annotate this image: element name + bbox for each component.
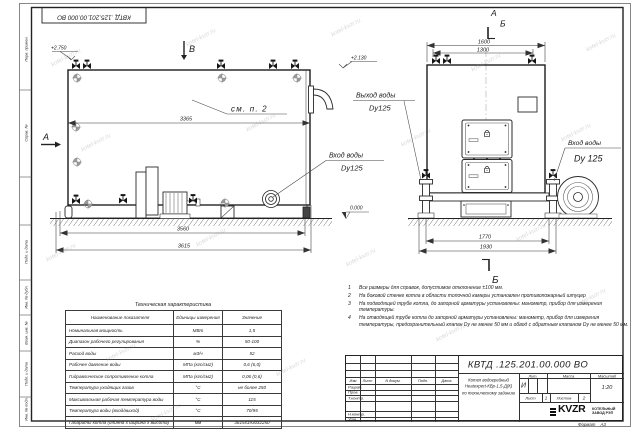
outlet-water-dn: Dy125 — [369, 104, 392, 113]
title-block: КВТД .125.201.00.000 ВО Изм Лист N докум… — [345, 355, 623, 421]
see-note-ref: см. п. 2 — [231, 105, 268, 114]
cell-name: Температура воды (вход/выход) — [66, 405, 174, 417]
sheets-label: Листов — [557, 395, 572, 400]
zero-elevation-mark: 0.000 — [342, 206, 369, 219]
note-text: На боковой стенке котла в области топочн… — [359, 293, 636, 299]
table-row: Рабочее давление водыМПа (кгс/см2)0,6 (6… — [66, 359, 282, 371]
valve-icon — [549, 169, 557, 178]
rev-col-data: Дата — [441, 379, 451, 383]
table-header-row: Наименование показателя Единицы измерени… — [66, 311, 282, 325]
lit-value: И — [521, 382, 526, 389]
fan-motor-assembly — [136, 167, 200, 219]
cell-unit: МПа (кгс/см2) — [174, 371, 223, 383]
control-panel — [518, 97, 537, 112]
cell-value: 0,06 (0,6) — [223, 371, 282, 383]
note-number: 1 — [346, 285, 359, 291]
cell-unit: °С — [174, 382, 223, 394]
scale-value: 1:20 — [602, 385, 613, 391]
rev-col-ndoc: N докум. — [385, 379, 400, 383]
format-value: А3 — [600, 422, 605, 427]
frame-label: Подп. и дата — [25, 240, 29, 264]
table-row: Габариты котла (длинна х ширина х высота… — [66, 417, 282, 429]
valve-icon — [528, 55, 536, 64]
valve-icon — [291, 60, 299, 69]
cell-value: 52 — [223, 348, 282, 360]
valve-icon — [83, 60, 91, 69]
sheet-value: 1 — [545, 395, 548, 400]
kvzr-logo-subtitle: КОТЕЛЬНЫЙ ЗАВОД РЭП — [592, 407, 615, 416]
view-label-b: В — [189, 44, 195, 54]
table-row: Расход водым3/ч52 — [66, 348, 282, 360]
note-item: 2На боковой стенке котла в области топоч… — [346, 293, 636, 299]
cell-unit: °С — [174, 405, 223, 417]
inlet-flange — [263, 191, 280, 208]
outlet-water-label: Выход воды — [356, 92, 396, 100]
front-inlet-dn: Dy 125 — [574, 154, 604, 164]
dim-1600: 1600 — [478, 40, 491, 46]
section-label-b-top: Б — [500, 19, 506, 29]
valve-icon — [72, 195, 80, 204]
corner-stamp: КВТД .125.201.00.000 ВО — [42, 8, 146, 24]
tech-characteristics: Техническая характеристика Наименование … — [65, 302, 281, 429]
cell-unit: мм — [174, 417, 223, 429]
note-text: На отводящей трубе котла до запорной арм… — [359, 315, 636, 328]
inlet-water-label: Вход воды — [329, 152, 364, 160]
dim-3560: 3560 — [177, 227, 190, 233]
boiler-door-upper — [462, 120, 512, 158]
doc-title-line: Котел водогрейный — [468, 377, 509, 382]
table-row: Максимальная рабочая температура воды°С1… — [66, 394, 282, 406]
cell-name: Рабочее давление воды — [66, 359, 174, 371]
role-tkontr: Т.контр. — [348, 395, 364, 400]
col-header-name: Наименование показателя — [66, 311, 174, 325]
outlet-elbow — [309, 86, 334, 113]
elev-0000: 0.000 — [350, 206, 363, 212]
frame-label: Справ. № — [25, 124, 29, 141]
format-note: ФорматА3 — [578, 422, 611, 427]
doc-number: КВТД .125.201.00.000 ВО — [468, 359, 588, 370]
table-row: Температура воды (вход/выход)°С70/95 — [66, 405, 282, 417]
elev-2750: +2.750 — [51, 46, 67, 52]
cell-unit: % — [174, 336, 223, 348]
role-prov: Пров. — [348, 390, 359, 395]
kvzr-sub-line2: ЗАВОД РЭП — [592, 411, 615, 415]
dim-3365: 3365 — [180, 117, 193, 123]
inlet-water-dn: Dy125 — [341, 164, 364, 173]
fan-scroll — [558, 177, 599, 219]
note-text: На подводящей трубе котла, до запорной а… — [359, 301, 636, 314]
cell-unit: м3/ч — [174, 348, 223, 360]
dim-3615: 3615 — [178, 244, 191, 250]
kvzr-logo-bars-icon — [550, 408, 556, 417]
valve-icon — [443, 55, 451, 64]
table-row: Номинальная мощностьМВт1,5 — [66, 325, 282, 337]
valve-icon — [72, 60, 80, 69]
rev-col-podp: Подп. — [418, 379, 428, 383]
cell-name: Максимальная рабочая температура воды — [66, 394, 174, 406]
notes-list: 1Все размеры для справок, допустимое отк… — [346, 285, 636, 330]
cell-value: 70/95 — [223, 405, 282, 417]
cell-value: не более 250 — [223, 382, 282, 394]
cell-name: Температура уходящих газов — [66, 382, 174, 394]
datum-target-icon — [292, 73, 302, 83]
front-outlet-pipe — [418, 180, 434, 219]
cell-name: Гидравлическое сопротивление котла — [66, 371, 174, 383]
dim-1770: 1770 — [479, 235, 492, 241]
note-text: Все размеры для справок, допустимое откл… — [359, 285, 636, 291]
cell-unit: °С — [174, 394, 223, 406]
cell-unit: МПа (кгс/см2) — [174, 359, 223, 371]
doc-title-line: Heatexpert-КВр-1,5-Д(К) — [465, 384, 513, 389]
scale-header: Масштаб — [598, 373, 616, 378]
table-row: Температура уходящих газов°Сне более 250 — [66, 382, 282, 394]
col-header-value: Значение — [223, 311, 282, 325]
cell-value: 0,6 (6,0) — [223, 359, 282, 371]
note-item: 3На подводящей трубе котла, до запорной … — [346, 301, 636, 314]
note-number: 4 — [346, 315, 359, 328]
mass-header: Масса — [563, 373, 575, 378]
cell-name: Диапазон рабочего регулирования — [66, 336, 174, 348]
cell-value: 115 — [223, 394, 282, 406]
tech-table-title: Техническая характеристика — [65, 302, 281, 308]
frame-label: Инв. № дубл. — [25, 285, 29, 308]
cell-name: Габариты котла (длинна х ширина х высота… — [66, 417, 174, 429]
role-utv: Утв. — [348, 417, 357, 422]
valve-icon — [217, 60, 225, 69]
cell-name: Расход воды — [66, 348, 174, 360]
lit-header: Лит. — [528, 373, 537, 378]
front-inlet-label: Вход воды — [568, 139, 601, 147]
side-view: 3365 3560 3615 см. п. 2 +2.750 +2.130 А … — [41, 41, 421, 253]
section-label-a: А — [42, 132, 49, 142]
table-row: Диапазон рабочего регулирования%50-100 — [66, 336, 282, 348]
side-view-dimensions — [56, 123, 311, 253]
valve-icon — [269, 60, 277, 69]
cell-value: 3615х1930х2250 — [223, 417, 282, 429]
cell-name: Номинальная мощность — [66, 325, 174, 337]
elev-2130: +2.130 — [351, 56, 367, 62]
sheets-value: 2 — [583, 395, 586, 400]
section-label-a-top: А — [490, 8, 497, 18]
datum-target-icon — [71, 122, 81, 132]
frame-label: Инв. № подл. — [25, 397, 29, 421]
role-nkontr: Н.контр. — [348, 411, 365, 416]
frame-label: Подп. и дата — [25, 362, 29, 386]
datum-target-icon — [72, 157, 82, 167]
role-razrab: Разраб. — [348, 384, 362, 389]
table-row: Гидравлическое сопротивление котлаМПа (к… — [66, 371, 282, 383]
valve-icon — [119, 194, 127, 203]
datum-target-icon — [72, 73, 82, 83]
note-item: 1Все размеры для справок, допустимое отк… — [346, 285, 636, 291]
rev-col-izm: Изм — [349, 379, 356, 383]
cell-value: 50-100 — [223, 336, 282, 348]
cell-unit: МВт — [174, 325, 223, 337]
kvzr-logo: KVZR — [558, 403, 585, 415]
boiler-door-lower — [462, 158, 512, 192]
datum-target-icon — [83, 199, 93, 209]
col-header-unit: Единицы измерения — [174, 311, 223, 325]
note-number: 2 — [346, 293, 359, 299]
frame-label: Перв. примен. — [25, 36, 29, 61]
corner-stamp-number: КВТД .125.201.00.000 ВО — [57, 13, 131, 20]
drawing-sheet: Перв. примен. Справ. № Подп. и дата Инв.… — [0, 0, 644, 430]
front-view: 1600 1300 1770 1930 А Б Б Вход воды Dy 1… — [408, 8, 621, 286]
sheet-label: Лист — [525, 395, 535, 400]
dim-1300: 1300 — [477, 48, 490, 54]
note-number: 3 — [346, 301, 359, 314]
valve-icon — [422, 169, 430, 178]
doc-title-line: по техническому заданию — [462, 390, 515, 395]
rev-col-list: Лист — [363, 379, 373, 383]
format-label: Формат — [578, 422, 595, 427]
cell-value: 1,5 — [223, 325, 282, 337]
tech-table: Наименование показателя Единицы измерени… — [65, 310, 282, 429]
note-item: 4На отводящей трубе котла до запорной ар… — [346, 315, 636, 328]
dim-1930: 1930 — [480, 245, 493, 251]
datum-target-icon — [217, 73, 227, 83]
frame-label: Взам. инв. № — [25, 321, 29, 344]
